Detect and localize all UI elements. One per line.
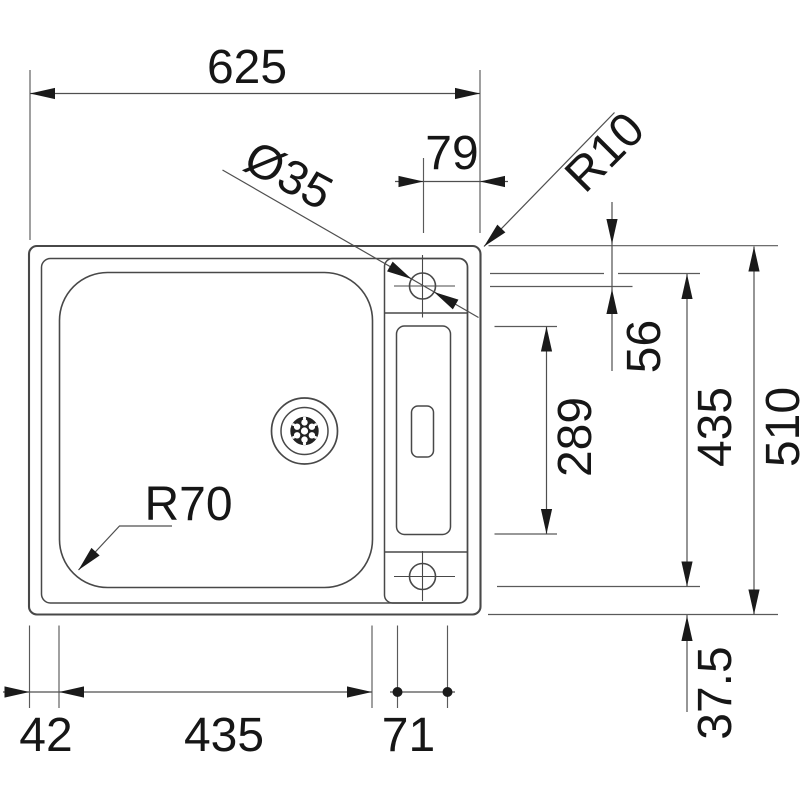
- svg-text:37.5: 37.5: [689, 646, 742, 739]
- svg-text:435: 435: [689, 387, 742, 467]
- svg-text:510: 510: [757, 387, 800, 467]
- svg-text:56: 56: [618, 320, 671, 373]
- svg-text:79: 79: [425, 127, 478, 180]
- svg-text:71: 71: [382, 709, 435, 762]
- svg-text:625: 625: [207, 41, 287, 94]
- svg-text:42: 42: [19, 709, 72, 762]
- svg-text:435: 435: [184, 709, 264, 762]
- svg-text:R70: R70: [145, 478, 233, 531]
- svg-text:289: 289: [549, 397, 602, 477]
